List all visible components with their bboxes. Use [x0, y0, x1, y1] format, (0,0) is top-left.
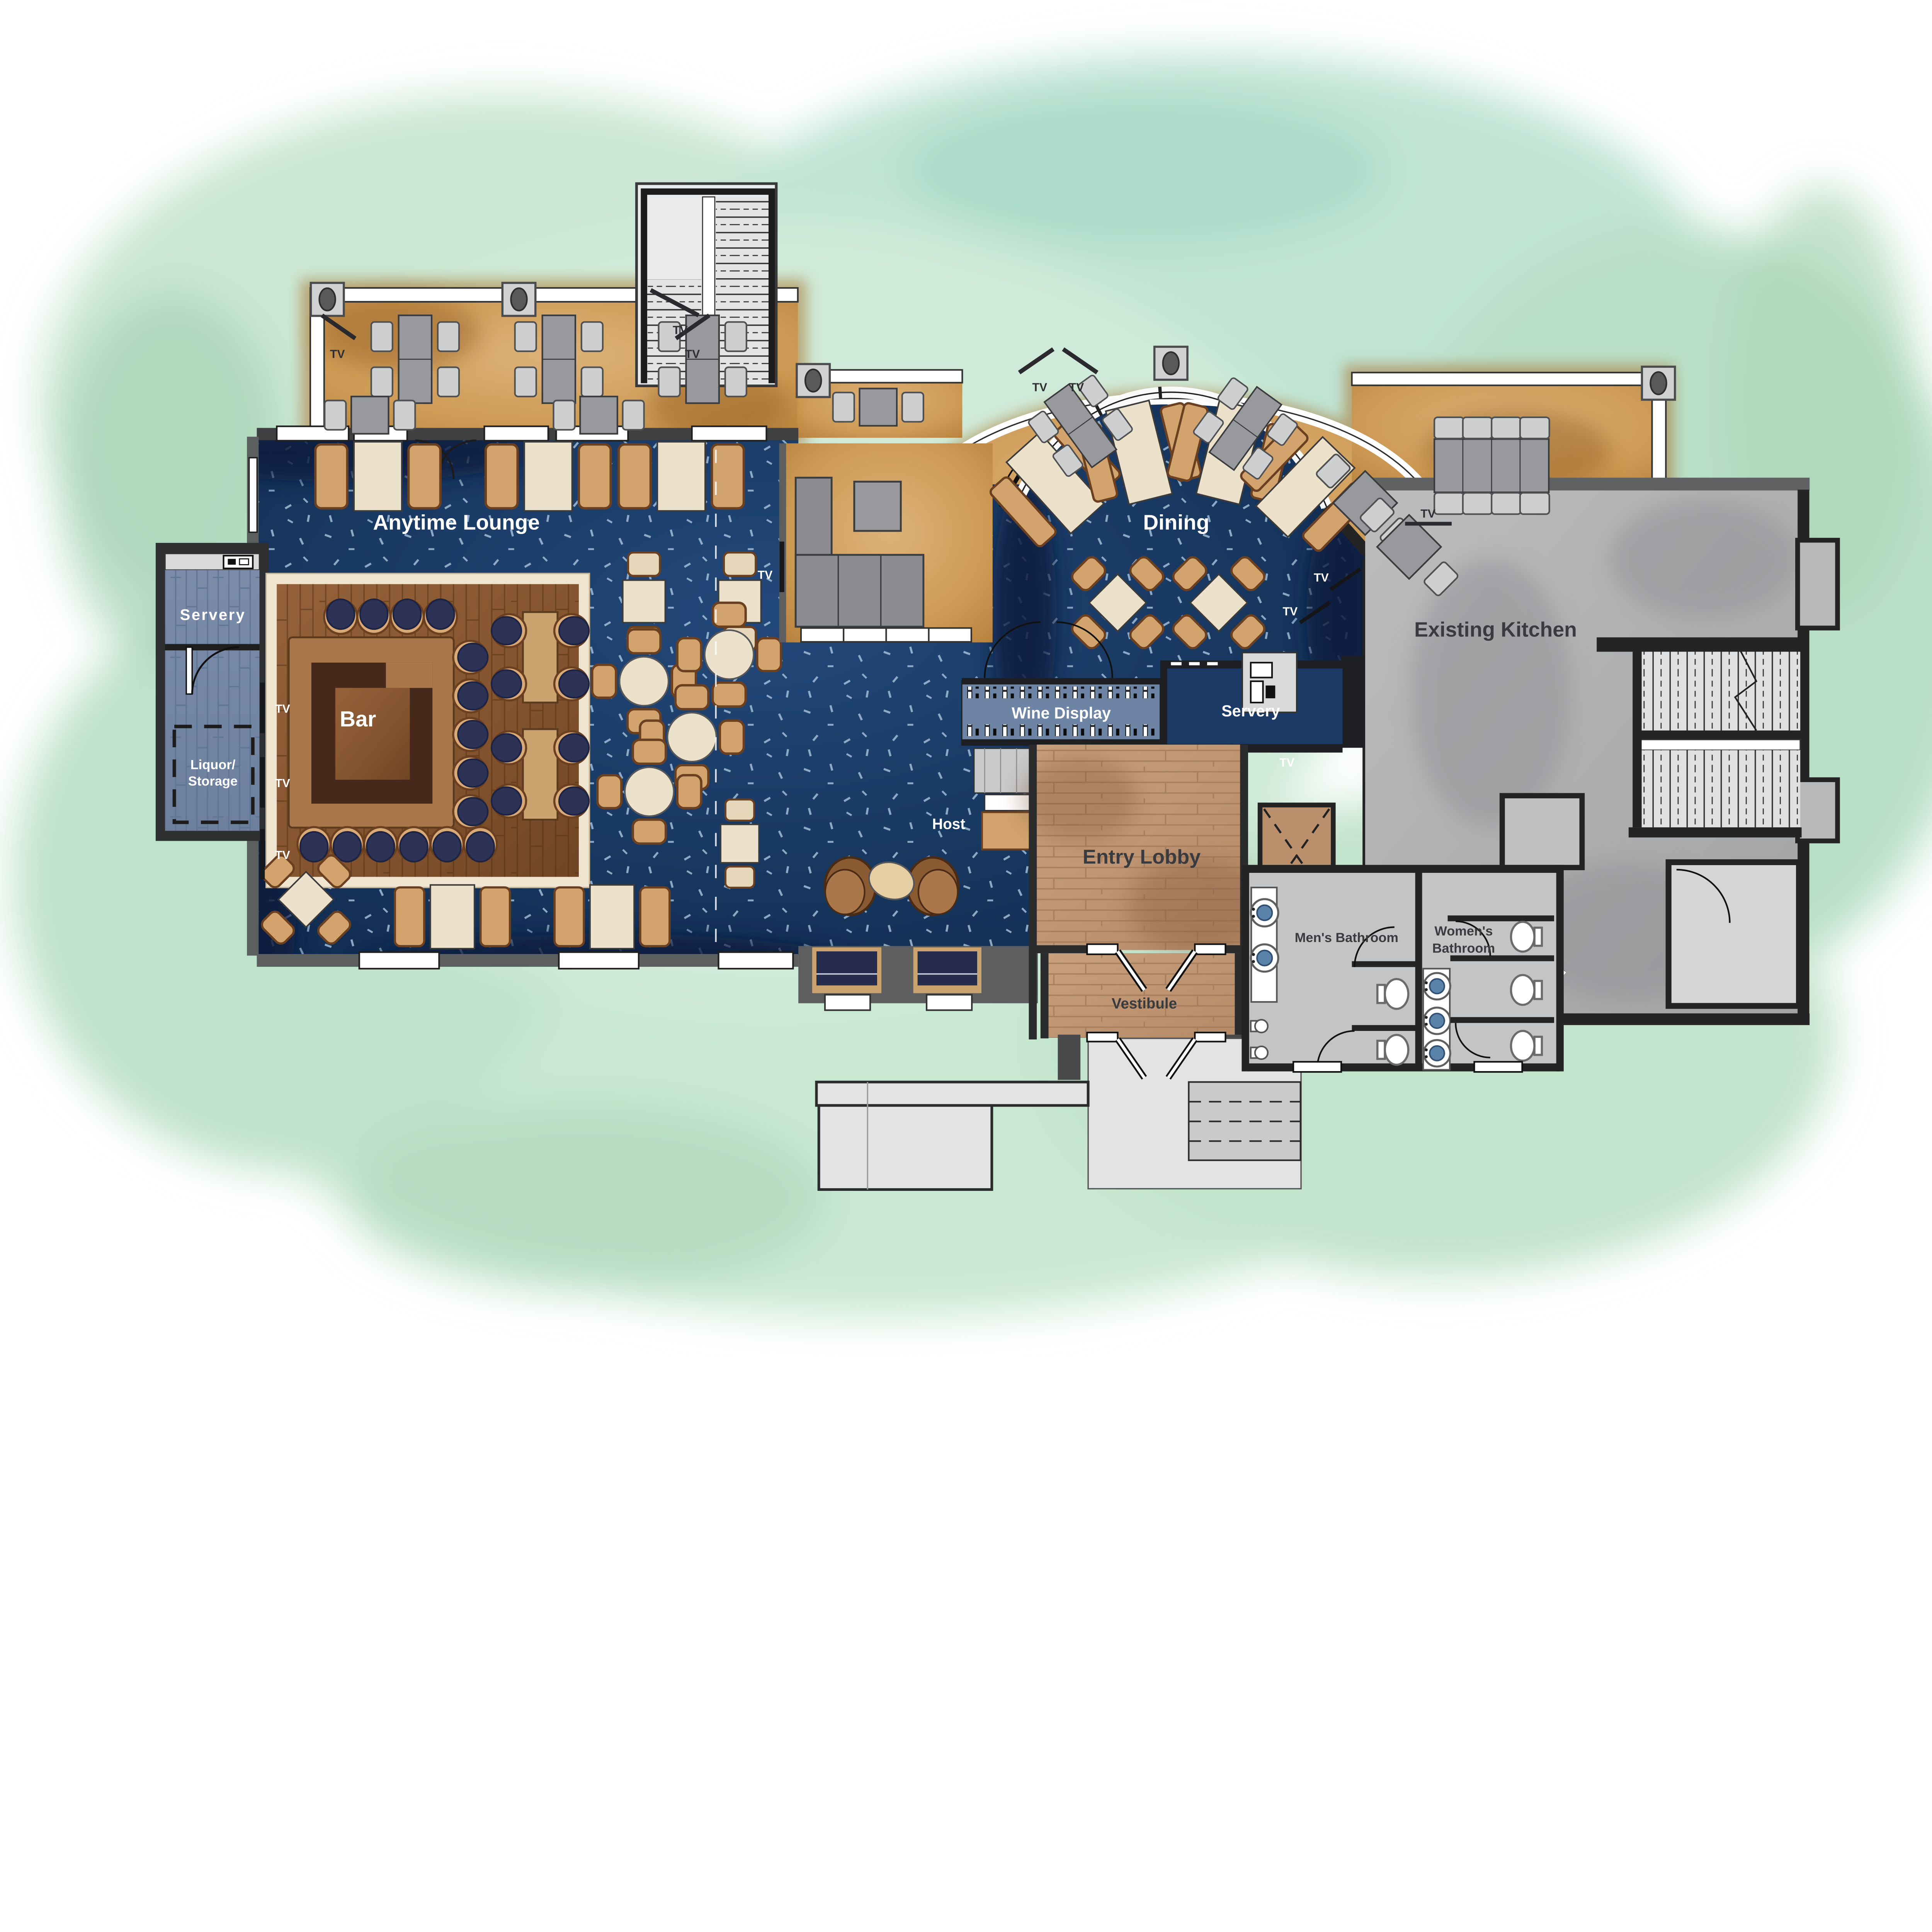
- label-entry-lobby: Entry Lobby: [1083, 846, 1201, 868]
- lounge-south-windows: [359, 952, 793, 969]
- label-tv: TV: [275, 702, 290, 715]
- label-wine-display: Wine Display: [1012, 704, 1111, 722]
- label-anytime-lounge: Anytime Lounge: [373, 510, 539, 534]
- servery-door-leaf: [186, 647, 192, 694]
- kitchen-annex-e: [1798, 780, 1837, 841]
- label-tv: TV: [330, 348, 345, 361]
- label-mens-bathroom: Men's Bathroom: [1295, 930, 1398, 945]
- room-servery-east: Servery: [1160, 653, 1343, 753]
- label-tv: TV: [275, 849, 290, 862]
- label-vestibule: Vestibule: [1112, 995, 1177, 1012]
- window-planter-bays: [798, 946, 1038, 1010]
- label-womens-bathroom-line2: Bathroom: [1432, 941, 1495, 956]
- label-existing-kitchen: Existing Kitchen: [1414, 618, 1577, 641]
- room-servery-west: Servery Liquor/ Storage: [156, 543, 269, 841]
- floor-plan-canvas: Servery Liquor/ Storage Bar: [0, 0, 1932, 1357]
- label-tv: TV: [1314, 571, 1329, 584]
- label-tv: TV: [673, 324, 688, 337]
- ramp-walk-upper: [816, 1082, 1088, 1105]
- label-tv: TV: [758, 569, 773, 582]
- terrace-long-table: [1434, 417, 1549, 514]
- label-liquor-line2: Storage: [188, 774, 238, 789]
- label-tv: TV: [275, 777, 290, 790]
- label-tv: TV: [1282, 605, 1298, 618]
- label-host: Host: [932, 816, 965, 832]
- kitchen-annex-ne: [1798, 540, 1837, 628]
- label-tv: TV: [1069, 381, 1084, 394]
- label-servery-east: Servery: [1221, 702, 1280, 720]
- floor-plan-page: Servery Liquor/ Storage Bar: [0, 0, 1932, 1357]
- ramp-walk-lower: [819, 1105, 992, 1190]
- bathrooms: Men's Bathroom Women's Bathroom: [1242, 865, 1563, 1072]
- label-tv: TV: [1032, 381, 1047, 394]
- label-tv: TV: [685, 348, 700, 361]
- label-tv: TV: [1279, 756, 1294, 769]
- label-liquor-line1: Liquor/: [190, 757, 236, 772]
- room-bar: Bar: [266, 573, 590, 888]
- label-servery-west: Servery: [180, 607, 246, 624]
- label-tv: TV: [1420, 508, 1435, 520]
- label-womens-bathroom-line1: Women's: [1434, 924, 1493, 939]
- host-stand: [982, 812, 1031, 849]
- kitchen-equipment-icon: [224, 556, 253, 568]
- label-bar: Bar: [340, 707, 376, 731]
- label-dining: Dining: [1143, 510, 1209, 534]
